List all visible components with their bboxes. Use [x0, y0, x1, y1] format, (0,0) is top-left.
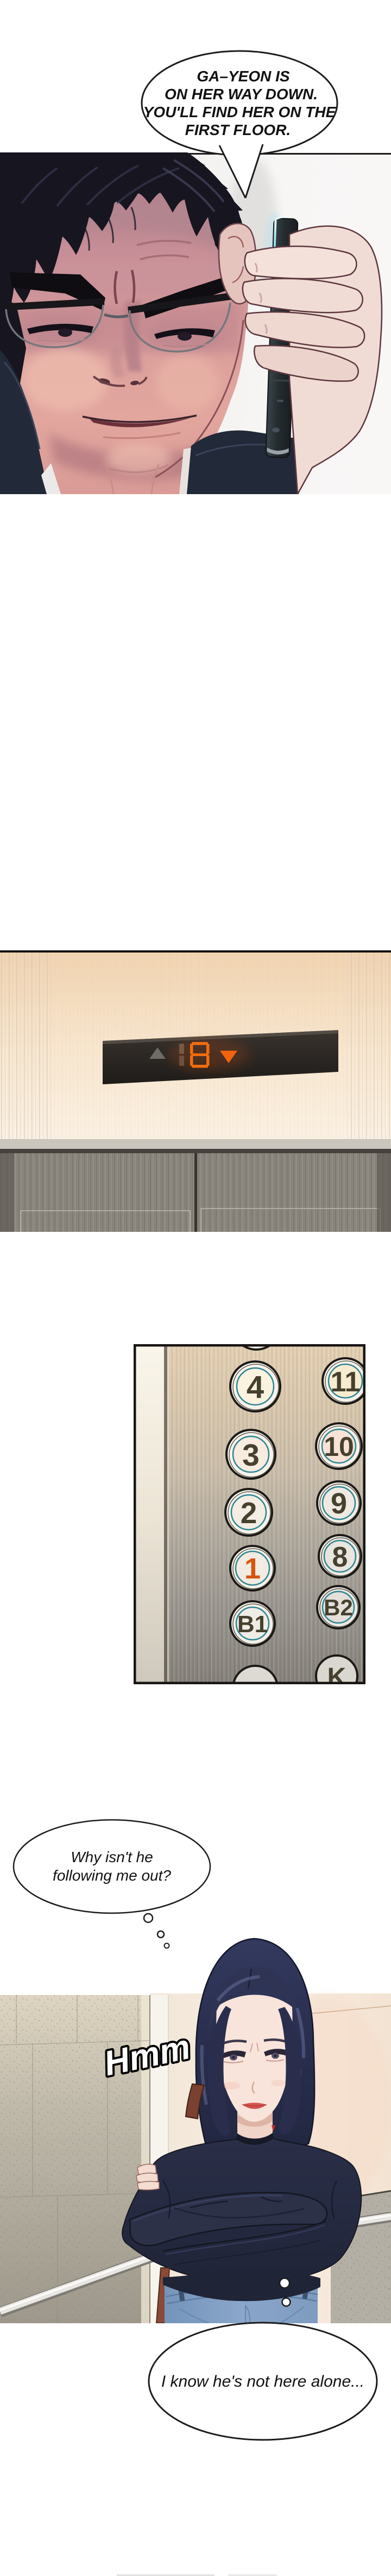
svg-text:4: 4	[247, 1370, 264, 1405]
svg-text:2: 2	[241, 1496, 257, 1530]
svg-text:9: 9	[331, 1487, 347, 1520]
svg-text:Why isn't he: Why isn't he	[71, 1849, 153, 1865]
svg-text:GA–YEON IS: GA–YEON IS	[197, 68, 289, 85]
svg-text:B2: B2	[324, 1595, 353, 1620]
svg-text:11: 11	[331, 1366, 361, 1398]
svg-text:B1: B1	[237, 1611, 268, 1638]
svg-text:3: 3	[242, 1438, 260, 1473]
svg-text:YOU'LL FIND HER ON THE: YOU'LL FIND HER ON THE	[143, 104, 337, 120]
svg-text:K: K	[327, 1663, 346, 1684]
svg-text:following me out?: following me out?	[53, 1867, 171, 1884]
svg-text:I know he's not here alone...: I know he's not here alone...	[161, 2373, 364, 2390]
svg-text:FIRST FLOOR.: FIRST FLOOR.	[185, 122, 291, 138]
svg-text:ON HER WAY DOWN.: ON HER WAY DOWN.	[165, 86, 318, 103]
svg-text:1: 1	[244, 1552, 261, 1585]
svg-text:10: 10	[324, 1431, 354, 1462]
svg-text:8: 8	[332, 1542, 348, 1573]
